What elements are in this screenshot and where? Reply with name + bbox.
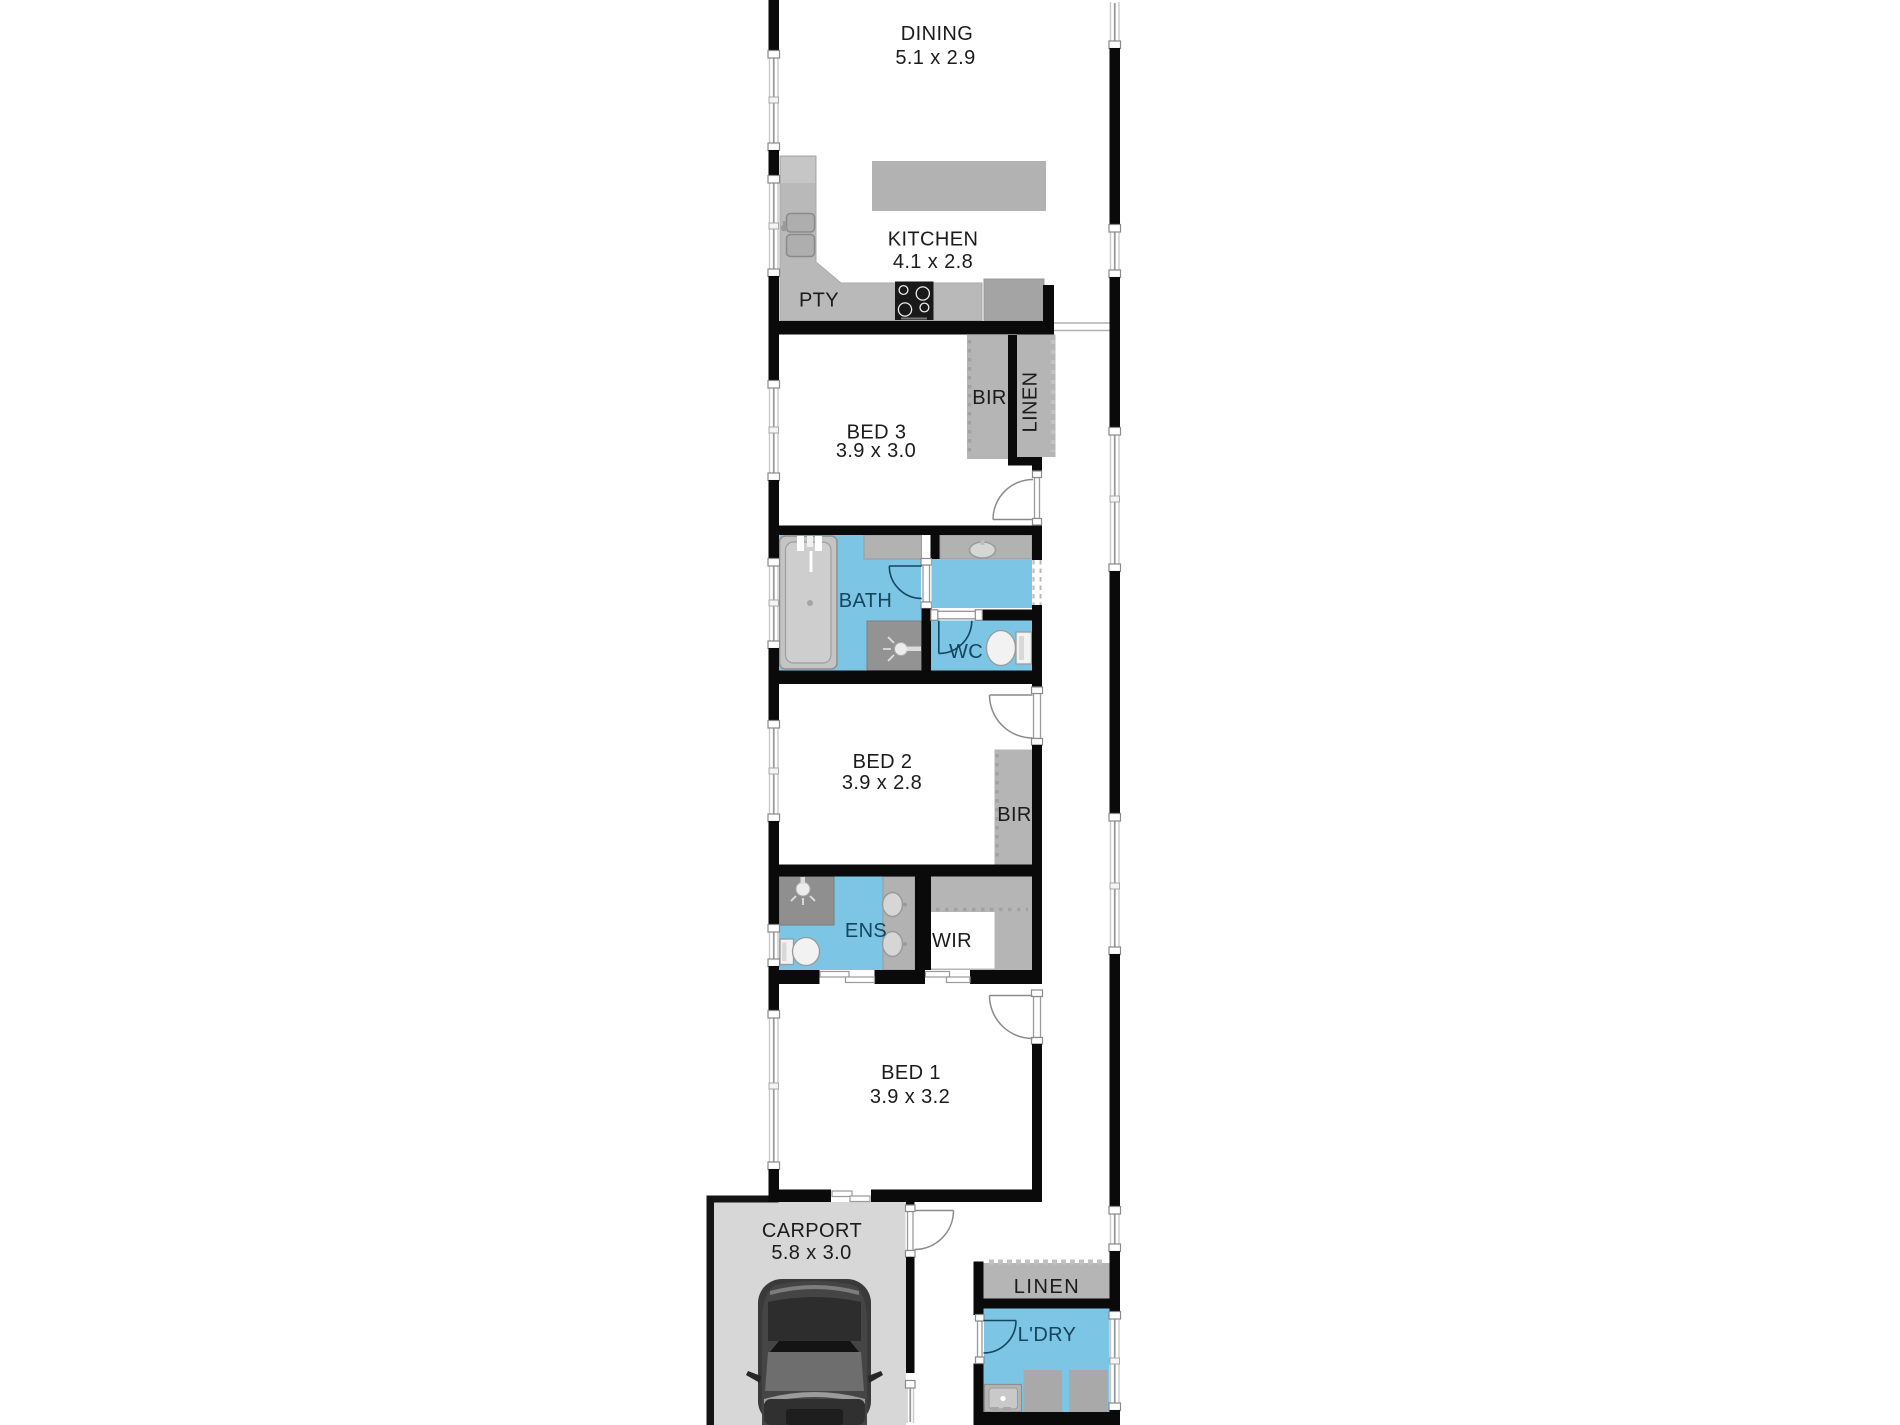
svg-text:4.1 x 2.8: 4.1 x 2.8 (893, 251, 973, 273)
svg-text:WC: WC (949, 641, 983, 663)
svg-text:3.9 x 2.8: 3.9 x 2.8 (842, 772, 922, 794)
svg-text:3.9 x 3.2: 3.9 x 3.2 (870, 1086, 950, 1108)
svg-text:3.9 x 3.0: 3.9 x 3.0 (836, 440, 916, 462)
svg-text:WIR: WIR (932, 930, 972, 952)
svg-text:PTY: PTY (799, 290, 839, 312)
svg-text:5.1 x 2.9: 5.1 x 2.9 (895, 47, 975, 69)
svg-text:BED 1: BED 1 (881, 1062, 941, 1084)
svg-text:BIR: BIR (972, 387, 1007, 409)
svg-text:LINEN: LINEN (1020, 372, 1042, 433)
svg-text:DINING: DINING (901, 23, 973, 45)
svg-text:L'DRY: L'DRY (1018, 1324, 1077, 1346)
svg-text:ENS: ENS (845, 920, 887, 942)
svg-text:BED 2: BED 2 (853, 751, 913, 773)
svg-text:BATH: BATH (839, 590, 892, 612)
svg-text:5.8 x 3.0: 5.8 x 3.0 (771, 1242, 851, 1264)
svg-text:CARPORT: CARPORT (762, 1220, 862, 1242)
svg-text:BIR: BIR (997, 804, 1032, 826)
svg-text:KITCHEN: KITCHEN (888, 229, 979, 251)
svg-text:LINEN: LINEN (1014, 1276, 1080, 1298)
